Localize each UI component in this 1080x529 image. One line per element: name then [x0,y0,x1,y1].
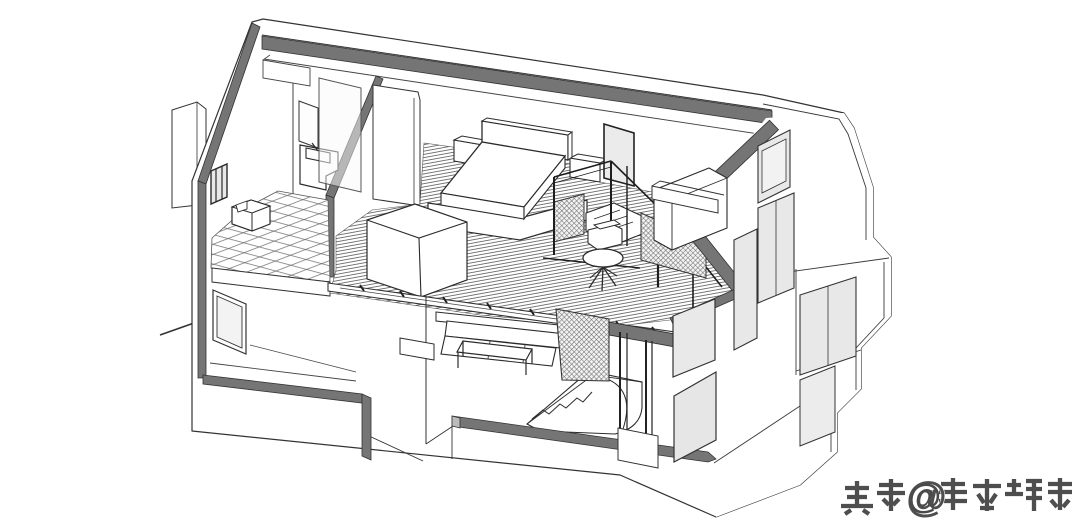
svg-text:@: @ [908,478,941,516]
